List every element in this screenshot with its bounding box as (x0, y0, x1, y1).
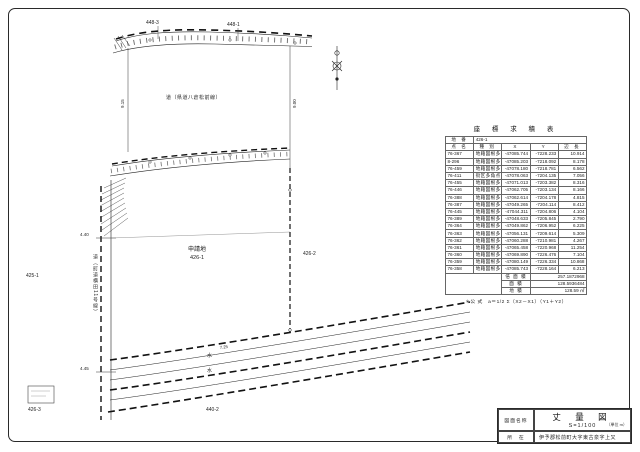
point-name-cell: 76-359 (446, 259, 474, 266)
side-length-cell: 7.104 (558, 252, 586, 259)
coordinate-row: 76-364 地籍図根多角点 -47049.862 -7206.952 6.22… (446, 223, 587, 230)
y-coordinate-cell: -7228.164 (530, 266, 558, 273)
slope-hatch (100, 178, 128, 236)
point-type-cell: 地籍図根多角点 (474, 252, 502, 259)
coordinate-row: 76-459 地籍図根多角点 -47078.180 -7218.781 6.56… (446, 165, 587, 172)
x-coordinate-cell: -47048.633 (502, 216, 530, 223)
coordinate-row: 76-358 地籍図根多角点 -47085.743 -7228.164 6.21… (446, 266, 587, 273)
point-name-cell: 76-367 (446, 151, 474, 158)
x-coordinate-cell: -47078.063 (502, 172, 530, 179)
dimension-9-00: 9.00 (292, 99, 297, 108)
subject-site-number: 426-1 (190, 255, 204, 261)
dimension-9-15: 9.15 (120, 99, 125, 108)
water-label-1: 水 (207, 352, 212, 359)
x-coordinate-cell: -47085.203 (502, 158, 530, 165)
point-type-cell: 地籍図根多角点 (474, 165, 502, 172)
middle-road (110, 148, 290, 176)
point-type-cell: 地籍図根多角点 (474, 216, 502, 223)
coordinate-row: 76-361 地籍図根多角点 -47065.458 -7220.968 11.2… (446, 244, 587, 251)
x-coordinate-cell: -47060.288 (502, 237, 530, 244)
y-coordinate-cell: -7204.135 (530, 172, 558, 179)
coordinate-row: 76-445 地籍図根多角点 -47044.311 -7204.806 4.10… (446, 208, 587, 215)
north-arrow-icon (332, 46, 342, 90)
x-coordinate-cell: -47044.311 (502, 208, 530, 215)
location-value: 伊予郡松前町大字東古泉字上又 (534, 431, 631, 443)
y-coordinate-cell: -7204.806 (530, 208, 558, 215)
coordinate-row: 76-446 地籍図根多角点 -47062.705 -7203.134 8.16… (446, 187, 587, 194)
side-length-cell: 6.213 (558, 266, 586, 273)
point-type-cell: 街区多角点 (474, 172, 502, 179)
y-coordinate-cell: -7210.981 (530, 237, 558, 244)
drawing-unit: （単位 m） (607, 422, 627, 428)
y-coordinate-cell: -7218.092 (530, 158, 558, 165)
location-label: 所 在 (498, 431, 534, 443)
drawing-name-label: 図面名称 (498, 409, 534, 431)
y-coordinate-cell: -7220.968 (530, 244, 558, 251)
x-coordinate-cell: -47085.743 (502, 266, 530, 273)
point-type-cell: 地籍図根多角点 (474, 187, 502, 194)
point-type-cell: 地籍図根多角点 (474, 244, 502, 251)
point-type-cell: 地籍図根多角点 (474, 223, 502, 230)
col-header-length: 辺 長 (558, 144, 586, 151)
dimension-4-45: 4.45 (80, 366, 89, 371)
parcel-label-425-1: 425-1 (26, 273, 39, 279)
dimension-4-40: 4.40 (80, 232, 89, 237)
point-type-cell: 地籍図根多角点 (474, 237, 502, 244)
side-length-cell: 5.309 (558, 230, 586, 237)
coordinate-row: 76-387 地籍図根多角点 -47049.265 -7204.114 8.41… (446, 201, 587, 208)
title-block: 図面名称 丈 量 図 S=1/100 （単位 m） 所 在 伊予郡松前町大字東古… (497, 408, 632, 444)
area-formula: ＊公 式 a＝1/2 Σ（X2－X1）（Y1＋Y2） (445, 298, 587, 305)
coordinate-row: 76-388 地籍図根多角点 -47062.614 -7204.178 4.81… (446, 194, 587, 201)
coordinate-table: 地 番 426-1 点 名 種 別 X Y 辺 長 76-367 地籍図根多角点… (445, 136, 587, 295)
water-label-2: 水 (207, 367, 212, 374)
point-type-cell: 地籍図根多角点 (474, 259, 502, 266)
upper-boundaries: 9.15 9.00 (120, 46, 297, 168)
side-length-cell: 8.412 (558, 201, 586, 208)
y-coordinate-cell: -7206.952 (530, 223, 558, 230)
col-header-point: 点 名 (446, 144, 474, 151)
point-type-cell: 地籍図根多角点 (474, 230, 502, 237)
bottom-band: 水 水 7.25 (108, 302, 470, 412)
side-length-cell: 4.104 (558, 208, 586, 215)
point-name-cell: 76-459 (446, 165, 474, 172)
y-coordinate-cell: -7209.614 (530, 230, 558, 237)
x-coordinate-cell: -47065.458 (502, 244, 530, 251)
legend-stamp-box: 426-3 (28, 386, 54, 413)
road-name-top: 道（県道八倉松前線） (166, 94, 221, 101)
subject-site-name: 申請地 (188, 245, 206, 253)
point-name-cell: 76-360 (446, 252, 474, 259)
point-type-cell: 地籍図根多角点 (474, 151, 502, 158)
coordinate-row: 8-296 地籍図根多角点 -47085.203 -7218.092 8.178 (446, 158, 587, 165)
parcel-number-label: 地 番 (446, 137, 474, 144)
top-road (113, 30, 312, 53)
point-type-cell: 地籍図根多角点 (474, 180, 502, 187)
side-length-cell: 11.254 (558, 244, 586, 251)
header-row: 点 名 種 別 X Y 辺 長 (446, 144, 587, 151)
parcel-number-row: 地 番 426-1 (446, 137, 587, 144)
side-length-cell: 10.868 (558, 259, 586, 266)
drawing-name-cell: 丈 量 図 S=1/100 （単位 m） (534, 409, 631, 431)
parcel-label-426-2: 426-2 (303, 251, 316, 257)
side-length-cell: 4.267 (558, 237, 586, 244)
y-coordinate-cell: -7205.845 (530, 216, 558, 223)
point-name-cell: 76-364 (446, 223, 474, 230)
point-name-cell: 76-411 (446, 172, 474, 179)
y-coordinate-cell: -7203.382 (530, 180, 558, 187)
point-name-cell: 76-363 (446, 230, 474, 237)
side-length-cell: 6.562 (558, 165, 586, 172)
double-area-value: 257.1872968 (530, 273, 586, 280)
coordinate-row: 76-455 地籍図根多角点 -47071.013 -7203.382 8.31… (446, 180, 587, 187)
x-coordinate-cell: -47080.149 (502, 259, 530, 266)
coordinate-row: 76-367 地籍図根多角点 -47085.744 -7228.233 10.9… (446, 151, 587, 158)
point-type-cell: 地籍図根多角点 (474, 266, 502, 273)
parcel-label-426-3: 426-3 (28, 407, 41, 413)
coordinate-rows: 76-367 地籍図根多角点 -47085.744 -7228.233 10.9… (446, 151, 587, 273)
col-header-x: X (502, 144, 530, 151)
side-length-cell: 4.815 (558, 194, 586, 201)
side-length-cell: 7.056 (558, 172, 586, 179)
x-coordinate-cell: -47049.265 (502, 201, 530, 208)
coordinate-row: 76-360 地籍図根多角点 -47069.890 -7226.476 7.10… (446, 252, 587, 259)
right-boundary (289, 168, 292, 332)
point-name-cell: 76-446 (446, 187, 474, 194)
col-header-type: 種 別 (474, 144, 502, 151)
summary-blank-cell (446, 273, 502, 295)
point-name-cell: 76-362 (446, 237, 474, 244)
side-length-cell: 8.166 (558, 187, 586, 194)
coordinate-table-panel: 座 標 求 積 表 地 番 426-1 点 名 種 別 X Y 辺 長 76-3… (445, 123, 587, 305)
subject-site-label: 申請地 426-1 (188, 245, 206, 261)
area-value: 128.5936484 (530, 280, 586, 287)
double-area-label: 倍 面 積 (502, 273, 530, 280)
coordinate-row: 76-359 地籍図根多角点 -47080.149 -7226.334 10.8… (446, 259, 587, 266)
point-name-cell: 8-296 (446, 158, 474, 165)
x-coordinate-cell: -47062.705 (502, 187, 530, 194)
point-name-cell: 76-387 (446, 201, 474, 208)
registered-area-label: 地 積 (502, 287, 530, 294)
road-name-left: 道（町道横田11号線） (92, 254, 99, 315)
point-name-cell: 76-445 (446, 208, 474, 215)
coordinate-row: 76-411 街区多角点 -47078.063 -7204.135 7.056 (446, 172, 587, 179)
side-length-cell: 2.790 (558, 216, 586, 223)
side-length-cell: 8.316 (558, 180, 586, 187)
internal-boundary (111, 232, 290, 238)
point-name-cell: 76-358 (446, 266, 474, 273)
x-coordinate-cell: -47049.862 (502, 223, 530, 230)
coordinate-row: 76-389 地籍図根多角点 -47048.633 -7205.845 2.79… (446, 216, 587, 223)
parcel-label-448-3: 448-3 (146, 20, 159, 26)
side-length-cell: 8.178 (558, 158, 586, 165)
x-coordinate-cell: -47069.890 (502, 252, 530, 259)
point-name-cell: 76-388 (446, 194, 474, 201)
x-coordinate-cell: -47085.744 (502, 151, 530, 158)
point-name-cell: 76-361 (446, 244, 474, 251)
dimension-7-25: 7.25 (219, 344, 228, 350)
point-type-cell: 地籍図根多角点 (474, 158, 502, 165)
y-coordinate-cell: -7204.114 (530, 201, 558, 208)
coordinate-row: 76-363 地籍図根多角点 -47056.131 -7209.614 5.30… (446, 230, 587, 237)
summary-row-double-area: 倍 面 積 257.1872968 (446, 273, 587, 280)
y-coordinate-cell: -7203.134 (530, 187, 558, 194)
point-type-cell: 地籍図根多角点 (474, 201, 502, 208)
col-header-y: Y (530, 144, 558, 151)
area-label: 面 積 (502, 280, 530, 287)
y-coordinate-cell: -7226.334 (530, 259, 558, 266)
y-coordinate-cell: -7226.476 (530, 252, 558, 259)
y-coordinate-cell: -7228.233 (530, 151, 558, 158)
y-coordinate-cell: -7218.781 (530, 165, 558, 172)
registered-area-value: 128.59 ㎡ (530, 287, 586, 294)
parcel-number-value: 426-1 (474, 137, 587, 144)
x-coordinate-cell: -47071.013 (502, 180, 530, 187)
x-coordinate-cell: -47056.131 (502, 230, 530, 237)
y-coordinate-cell: -7204.178 (530, 194, 558, 201)
coordinate-table-title: 座 標 求 積 表 (445, 123, 587, 133)
x-coordinate-cell: -47078.180 (502, 165, 530, 172)
coordinate-row: 76-362 地籍図根多角点 -47060.288 -7210.981 4.26… (446, 237, 587, 244)
parcel-label-440-2: 440-2 (206, 407, 219, 413)
side-length-cell: 10.914 (558, 151, 586, 158)
x-coordinate-cell: -47062.614 (502, 194, 530, 201)
point-name-cell: 76-455 (446, 180, 474, 187)
point-name-cell: 76-389 (446, 216, 474, 223)
side-length-cell: 6.225 (558, 223, 586, 230)
survey-drawing-sheet: 448-3 448-1 9.15 9.00 道（県道八倉松前線） (0, 0, 640, 452)
point-type-cell: 地籍図根多角点 (474, 194, 502, 201)
point-type-cell: 地籍図根多角点 (474, 208, 502, 215)
parcel-label-448-1: 448-1 (227, 22, 240, 28)
